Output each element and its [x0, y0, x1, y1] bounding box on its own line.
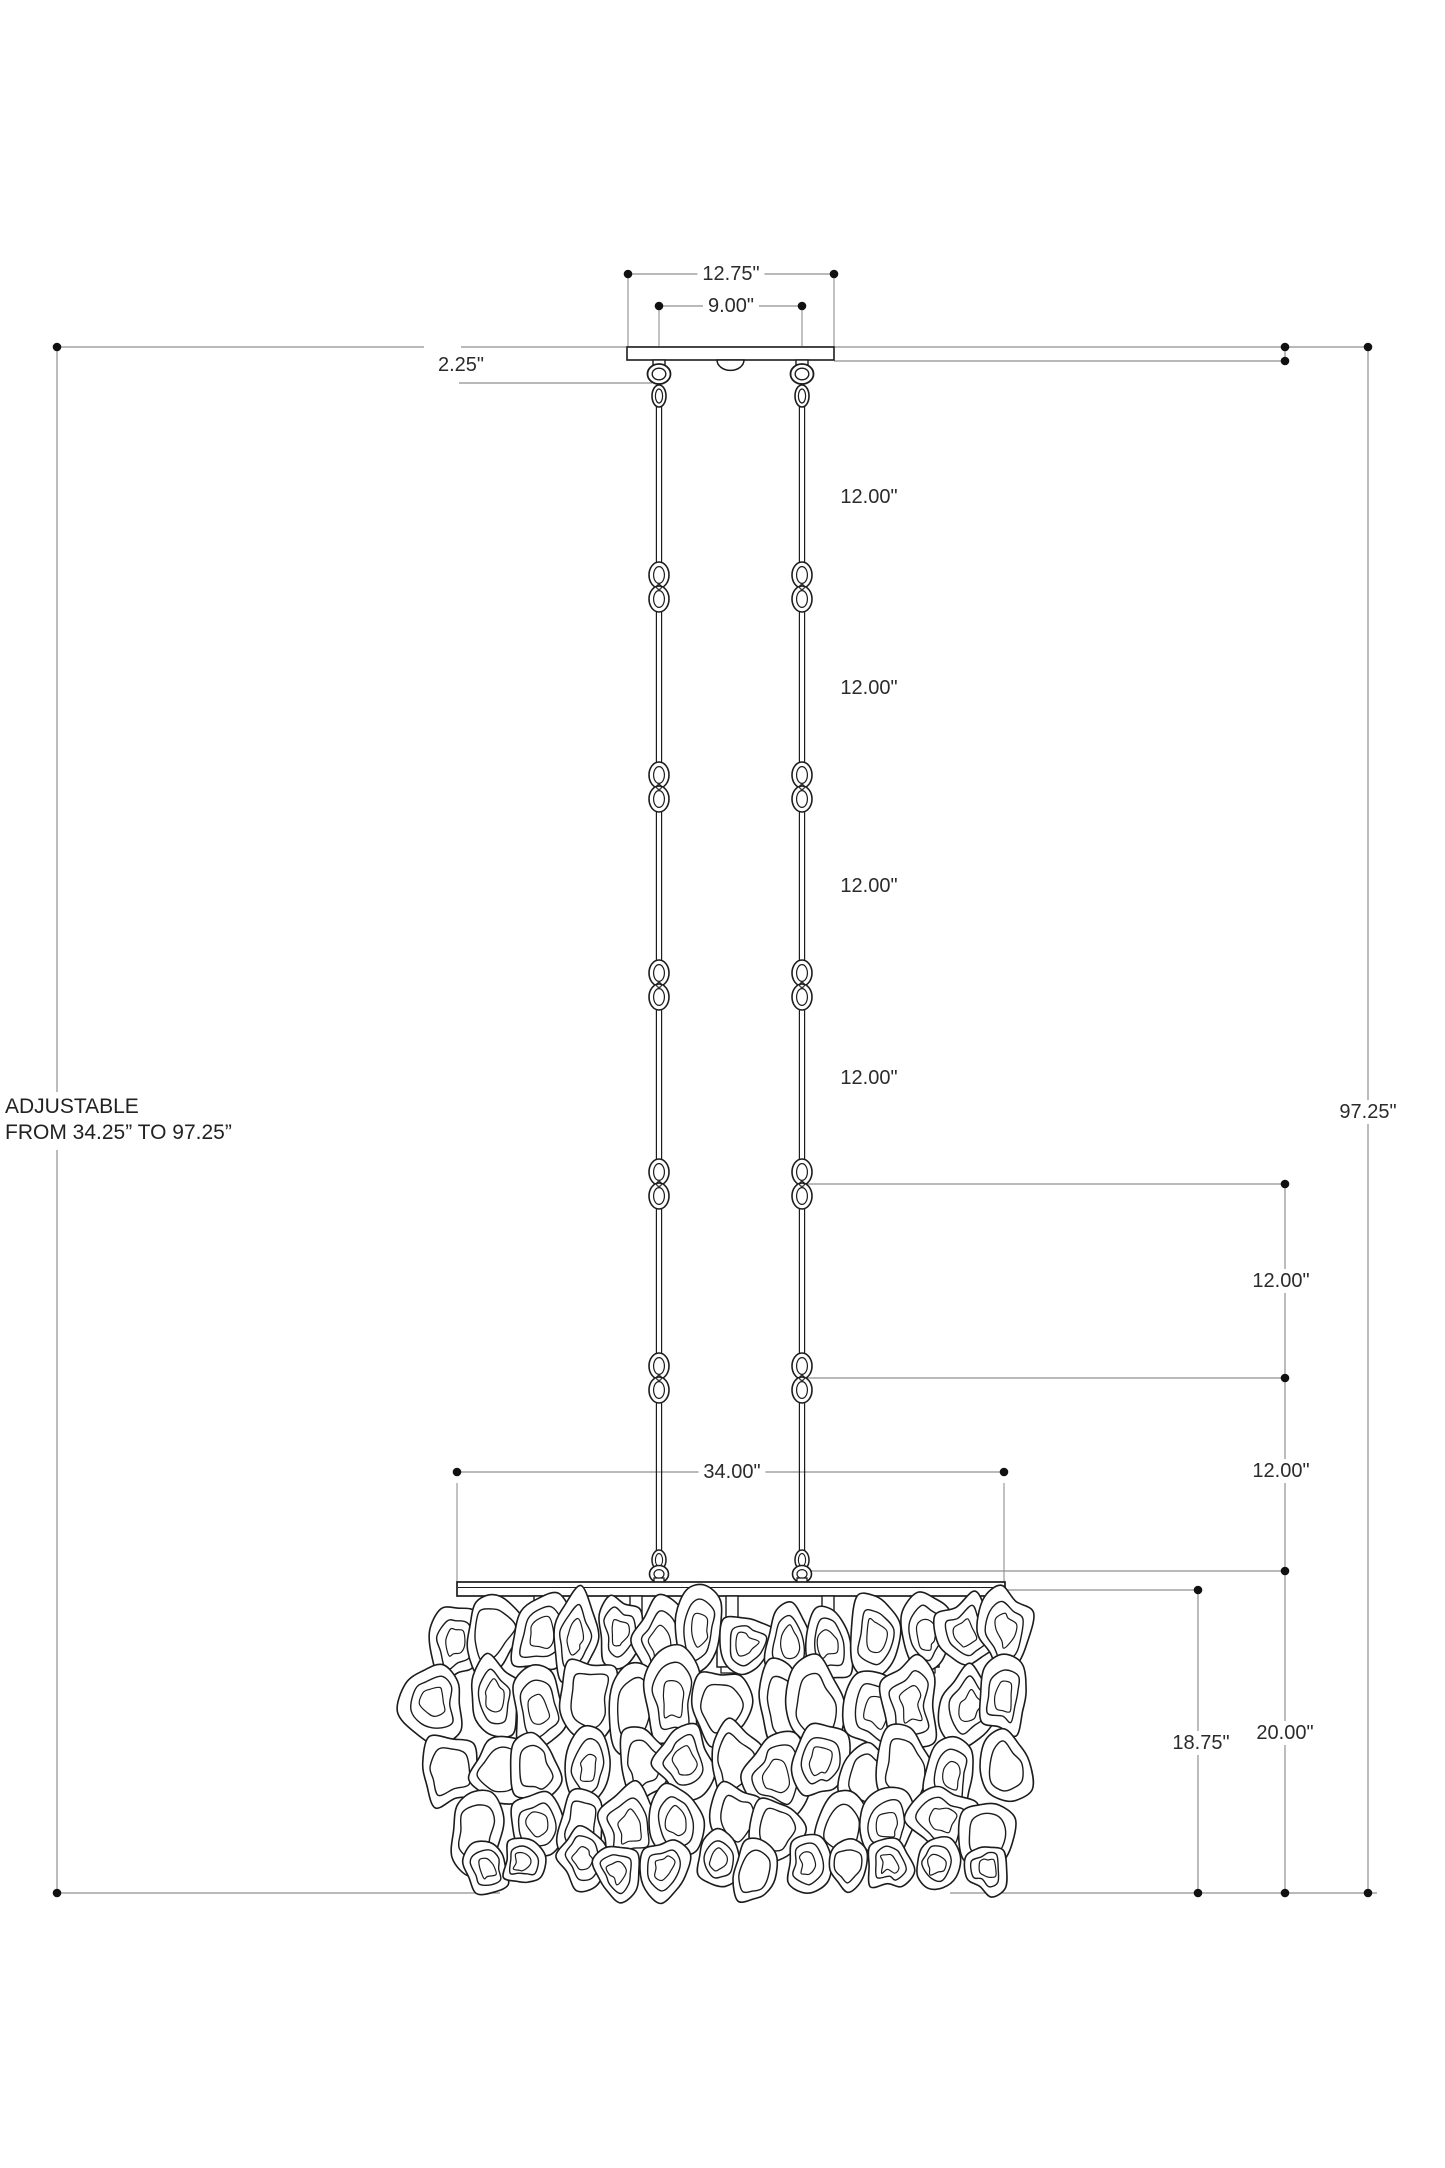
dim-shell-drop-label: 18.75": [1167, 1731, 1234, 1755]
dim-canopy-width-label: 12.75": [697, 262, 764, 286]
shell-cascade: [397, 1584, 1034, 1903]
dim-fixture-height-label: 20.00": [1251, 1721, 1318, 1745]
dim-chain-segment-1-label: 12.00": [835, 485, 902, 509]
dim-chain-segment-6-label: 12.00": [1247, 1459, 1314, 1483]
dim-chain-segment-4-label: 12.00": [835, 1066, 902, 1090]
dim-chain-segment-5-label: 12.00": [1247, 1269, 1314, 1293]
technical-drawing-canvas: [0, 0, 1445, 2168]
dim-chain-segment-2-label: 12.00": [835, 676, 902, 700]
dim-fixture-width-label: 34.00": [698, 1460, 765, 1484]
adjustable-note: ADJUSTABLE FROM 34.25” TO 97.25”: [5, 1092, 238, 1150]
dim-chain-segment-3-label: 12.00": [835, 874, 902, 898]
dim-hang-spacing-label: 9.00": [703, 294, 759, 318]
drawing-sheet: 12.75" 9.00" 2.25" 12.00" 12.00" 12.00" …: [0, 0, 1445, 2168]
dim-overall-height-label: 97.25": [1334, 1100, 1401, 1124]
dim-canopy-height-label: 2.25": [433, 353, 489, 377]
adjustable-note-line1: ADJUSTABLE: [5, 1094, 232, 1120]
adjustable-note-line2: FROM 34.25” TO 97.25”: [5, 1120, 232, 1146]
